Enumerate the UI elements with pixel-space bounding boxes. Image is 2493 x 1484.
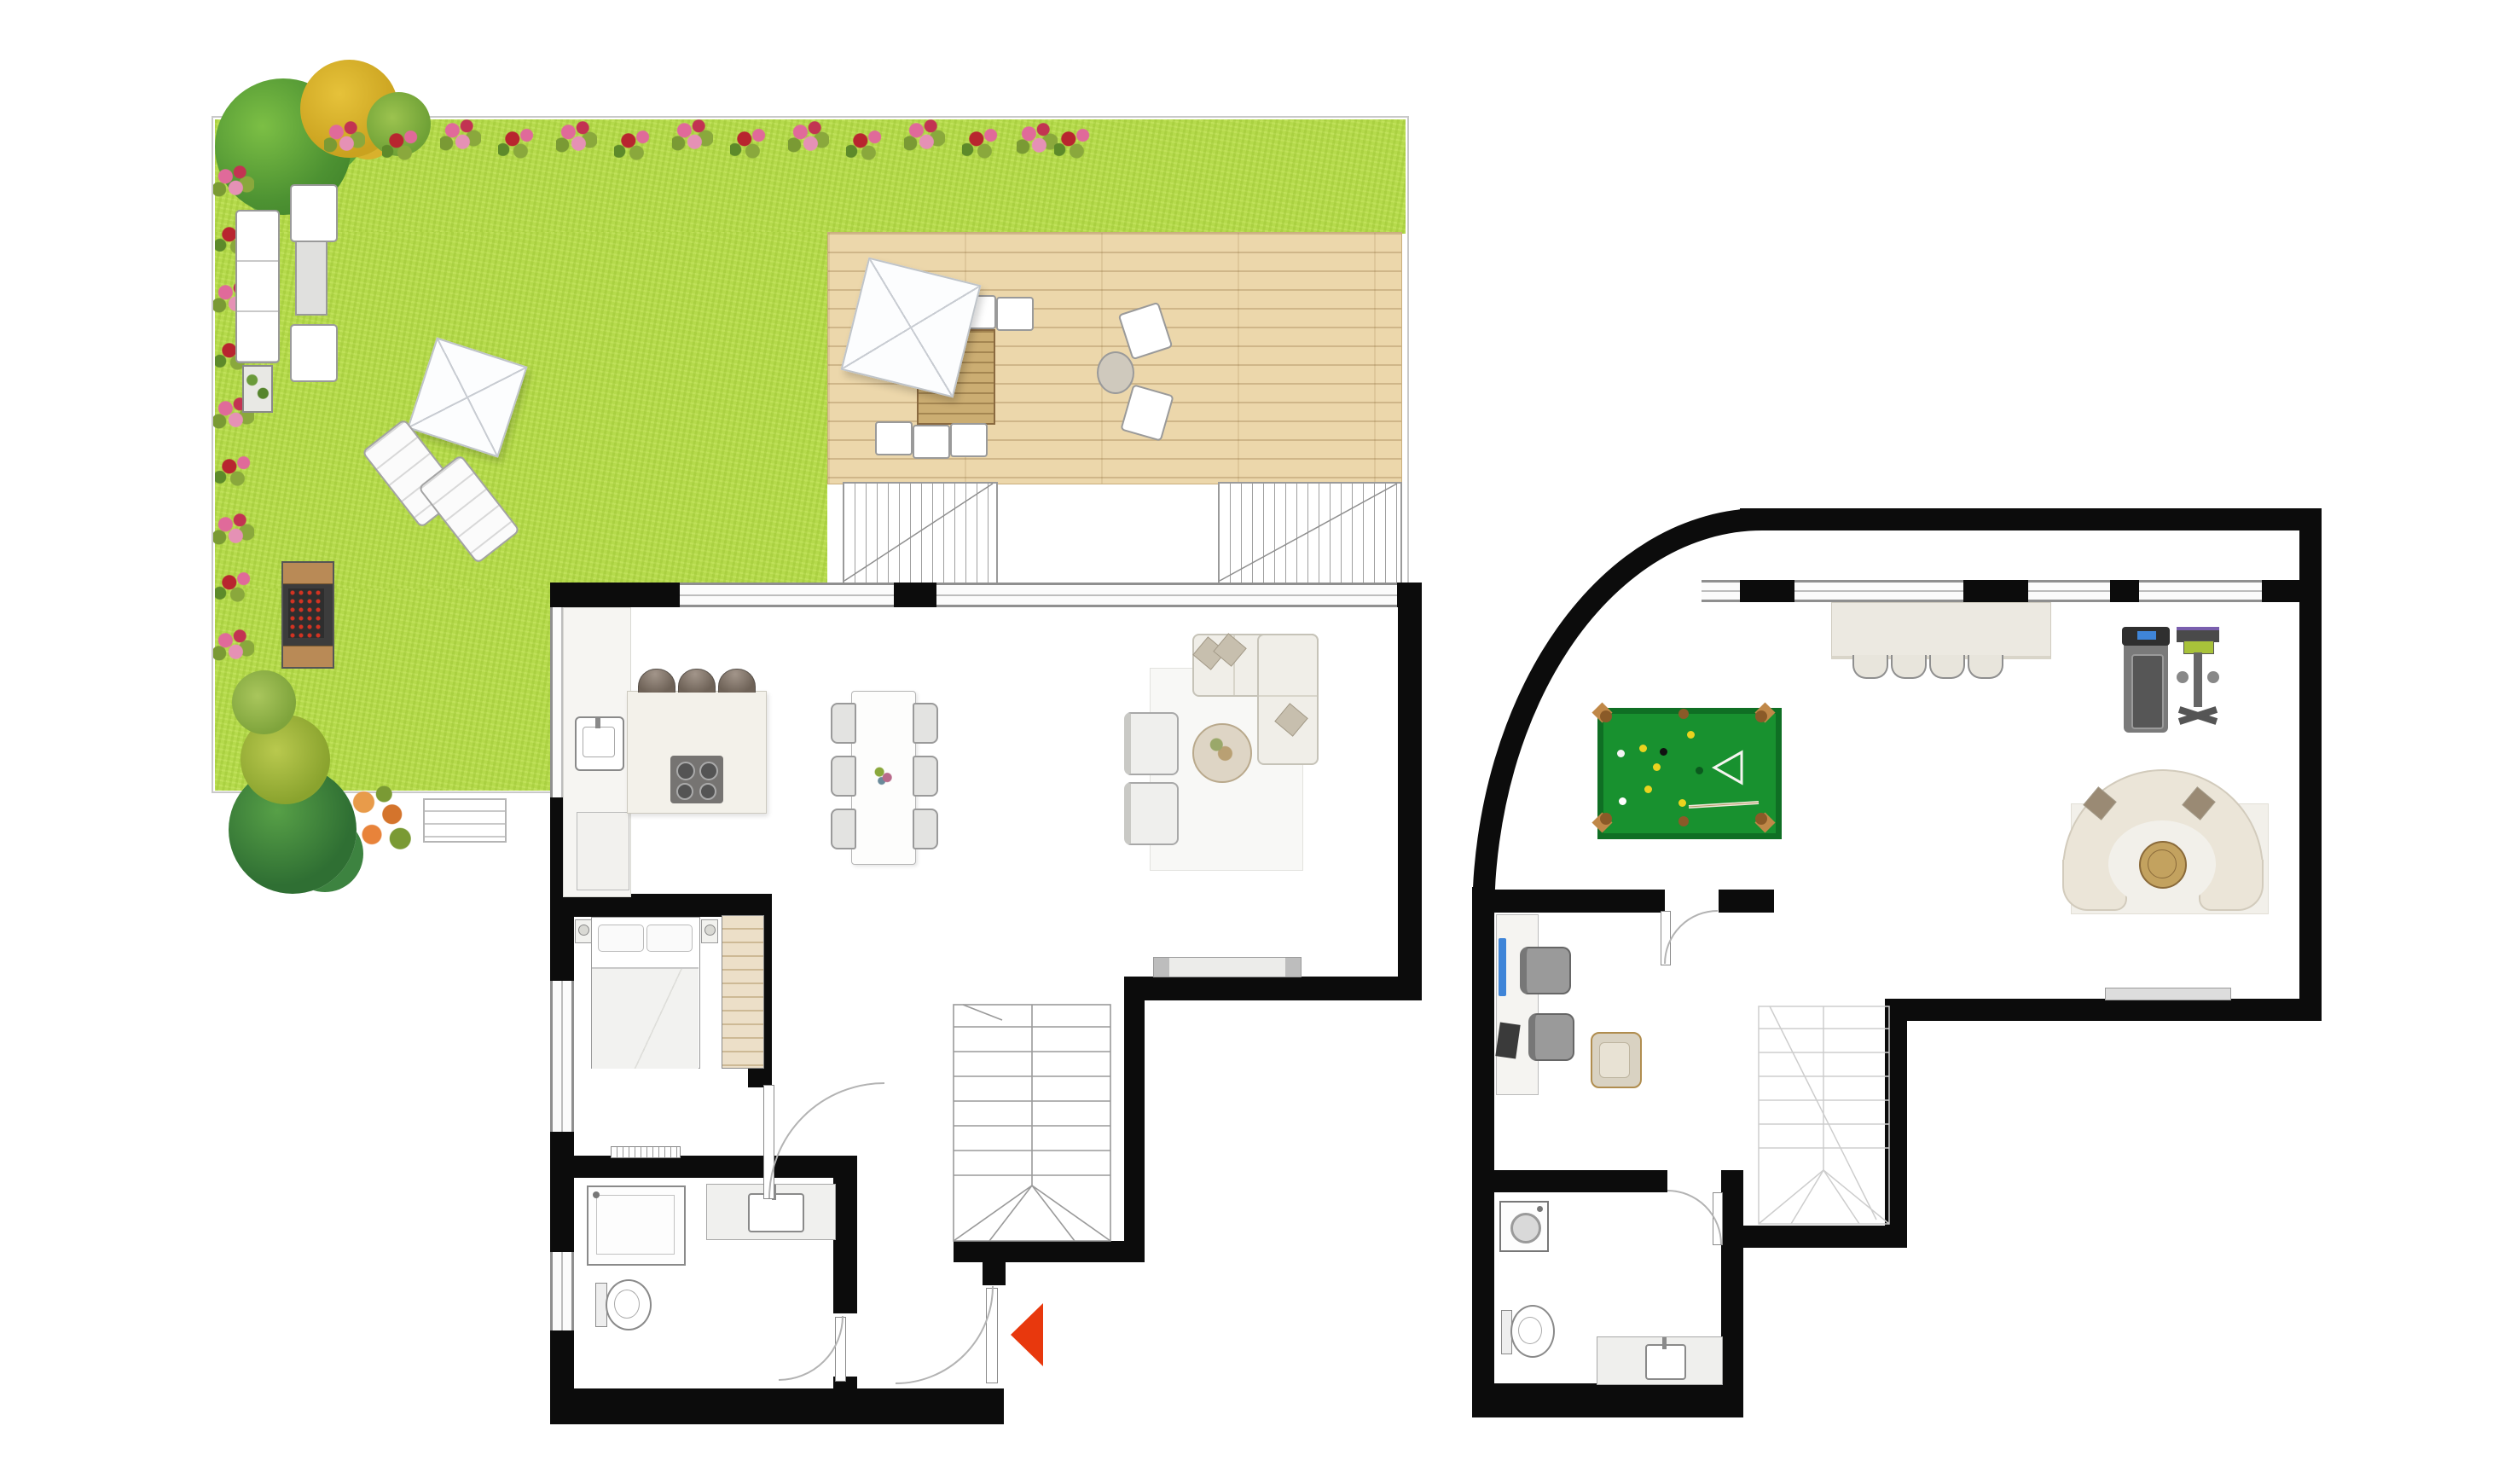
shower [587,1185,686,1266]
upper-right-wall [1398,583,1422,1000]
toilet-seat [1518,1317,1542,1344]
shower-tray [596,1195,675,1255]
pocket [1600,710,1612,722]
treadmill-belt [2131,654,2164,729]
shower-head-icon [593,1191,600,1198]
treadmill-screen [2137,631,2156,640]
flower-cluster [672,116,713,152]
kitchen-sink [575,716,624,771]
window-pier [2262,580,2299,602]
pocket [1755,710,1767,722]
entry-stub-wall [983,1262,1006,1285]
bathroom-door-leaf-lower [1713,1192,1723,1245]
stair-bottom-wall-upper [954,1241,1145,1262]
flower-cluster [846,126,887,162]
terrace-skylight-grate-right [1218,482,1402,586]
office-top-wall-pier [1719,890,1774,913]
treadmill [2124,627,2168,733]
pocket [1678,709,1689,719]
orange-flower-bush-icon [339,778,420,859]
window-pier [1740,580,1794,602]
deck-dining-chair [996,297,1034,331]
dining-chair [913,809,938,849]
burner [676,762,695,780]
billiard-ball-yellow [1687,731,1695,739]
outdoor-coffee-table [295,241,328,316]
flower-cluster [1017,119,1058,155]
vanity-lower [1597,1336,1723,1385]
toilet-lower [1501,1305,1552,1358]
washer-knob [1537,1206,1543,1212]
burner [699,783,716,800]
lower-top-wall [1740,508,2322,530]
kitchen-bedroom-divider [550,894,772,917]
toilet-upper [595,1279,650,1329]
lower-bottom-wall [1472,1383,1743,1417]
wardrobe [722,915,764,1069]
bathroom-top-wall-lower [1472,1170,1667,1192]
flower-cluster [215,568,256,604]
window-pier [1963,580,2028,602]
entrance-door-leaf [986,1288,998,1383]
billiard-table [1597,708,1782,839]
flower-cluster [498,125,539,160]
billiard-ball-yellow [1639,745,1647,752]
armchair-cushion [1599,1042,1630,1078]
bar-stool [1852,655,1888,679]
bbq-grill [281,561,334,669]
office-chair [1520,947,1571,994]
kitchen-bar-stool [718,669,756,693]
bar-stool [1891,655,1927,679]
billiard-ball-white [1617,750,1625,757]
outdoor-armchair [290,324,338,382]
office-chair [1528,1013,1574,1061]
radiator [611,1146,681,1158]
machine-pedal [2177,671,2189,683]
stair-right-wall-lower [1885,999,1907,1248]
sink-faucet [595,718,600,728]
billiard-ball-yellow [1678,799,1686,807]
living-window-right [936,583,1397,607]
kitchen-base-cabinet [577,812,629,890]
dining-chair [831,756,856,797]
table-inner-ring [2148,849,2177,878]
deck-side-table [1097,351,1134,394]
flower-cluster [324,118,365,154]
dining-chair [831,809,856,849]
bbq-grate [288,588,324,638]
deck-dining-chair [875,421,913,455]
machine-stem [2194,652,2202,707]
entrance-arrow [1011,1303,1043,1366]
bar-counter [1831,602,2051,659]
bed-pillow [598,925,644,952]
games-bottom-wall [1902,999,2322,1021]
bathroom-right-wall-lower [1721,1170,1743,1417]
billiard-ball-green [1696,767,1703,774]
toilet-seat [614,1290,640,1319]
bbq-shelf [283,563,333,584]
outdoor-armchair [290,184,338,242]
flower-cluster [213,626,254,662]
light-green-bush-icon [232,670,296,734]
flower-cluster [556,118,597,154]
kitchen-bar-stool [638,669,675,693]
machine-pedal [2207,671,2219,683]
flower-cluster [730,125,771,160]
flower-cluster [1054,125,1095,160]
bed-blanket [592,967,699,1069]
billiard-ball-yellow [1644,785,1652,793]
garden-border-right [1407,116,1409,588]
armchair [1124,782,1179,845]
stair-right-wall-upper [1124,977,1145,1248]
flower-cluster [788,118,829,154]
bar-stool [1968,655,2003,679]
bathroom-door-leaf-upper [835,1317,846,1382]
washing-machine [1499,1201,1549,1252]
pocket [1755,813,1767,825]
window-pier [2110,580,2139,602]
bathroom-right-wall-upper [833,1178,857,1313]
dining-chair [913,756,938,797]
garden-bench [423,798,507,843]
burner [676,783,693,800]
billiard-ball-white [1619,797,1626,805]
tv-console-lower [2105,988,2231,1000]
flower-cluster [962,125,1003,160]
flower-cluster [213,162,254,198]
floor-plan-canvas [0,0,2493,1484]
armchair [1124,712,1179,775]
dining-chair [913,703,938,744]
garden-border-left [212,116,213,793]
flower-cluster [614,126,655,162]
lamp-icon [704,925,716,936]
nightstand [701,919,718,943]
dining-chair [831,703,856,744]
round-side-table [1192,723,1252,783]
hall-bottom-wall-lower [1743,1226,1907,1248]
planter-box [242,365,273,413]
bed-pillow [646,925,693,952]
monitor-blue [1499,938,1506,996]
lower-left-wall [1472,887,1494,1417]
pocket [1678,816,1689,826]
double-bed [591,917,700,1069]
tv-console-upper [1153,957,1302,977]
cooktop [670,756,723,803]
office-top-wall [1472,890,1665,913]
flower-cluster [382,126,423,162]
burner [699,762,718,780]
bathroom-window [550,1252,574,1330]
vanity-faucet [1662,1337,1667,1349]
vanity-sink [1645,1344,1686,1380]
kitchen-bar-stool [678,669,716,693]
lounge-armchair [1591,1032,1642,1088]
nightstand [575,919,592,943]
bedroom-door-leaf [763,1085,774,1199]
washer-door [1510,1213,1541,1243]
vanity-sink [748,1193,804,1232]
lamp-icon [578,925,589,936]
flower-cluster [440,116,481,152]
l-sofa-right [1257,634,1319,765]
bathroom-top-wall-upper [550,1156,857,1178]
billiard-ball-yellow [1653,763,1661,771]
round-coffee-table [2139,841,2187,889]
lower-right-wall [2299,508,2322,1021]
flower-cluster [213,510,254,546]
deck-dining-chair [950,423,988,457]
living-window-left [680,583,894,607]
dining-centerpiece [872,764,894,786]
exercise-machine [2177,627,2219,733]
living-bottom-wall [1124,977,1422,1000]
terrace-skylight-grate-left [843,482,998,586]
bbq-shelf [283,646,333,667]
billiard-ball-black [1660,748,1667,756]
deck-dining-chair [913,425,950,459]
bedroom-window [550,981,574,1132]
bar-stool [1929,655,1965,679]
outdoor-sofa [235,210,280,363]
flower-cluster [904,116,945,152]
pocket [1600,813,1612,825]
flower-cluster [215,452,256,488]
office-door-leaf [1661,911,1671,965]
table-decor [1201,730,1239,768]
upper-bottom-wall [550,1388,1004,1424]
sink-basin [583,727,615,757]
